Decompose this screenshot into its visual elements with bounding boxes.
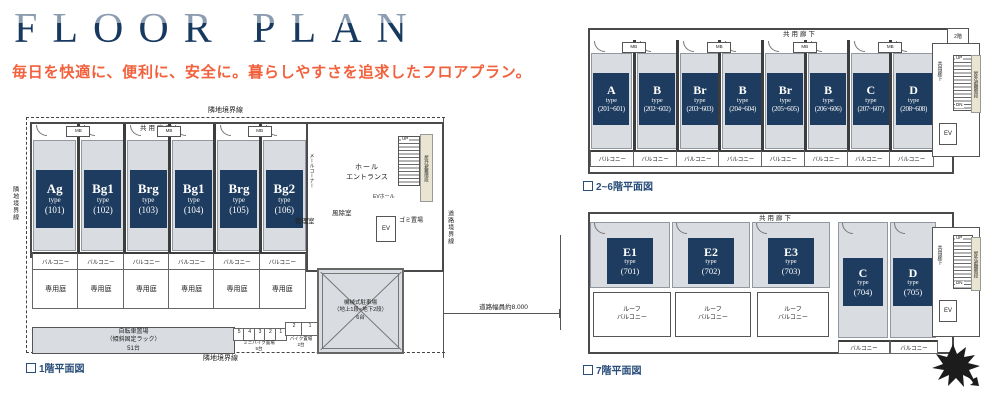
unit-cell: Bg2type(106) bbox=[259, 124, 307, 252]
unit-name: E2 bbox=[704, 246, 718, 259]
unit-tag: Brtype(203~603) bbox=[682, 73, 718, 125]
corridor-label-7f-side: 共用廊下 bbox=[936, 245, 942, 265]
unit-type-word: type bbox=[142, 196, 154, 205]
unit-name: Bg1 bbox=[92, 182, 114, 196]
private-garden-cell: 専用庭 bbox=[168, 269, 215, 309]
private-garden-cell: 専用庭 bbox=[123, 269, 170, 309]
opposite-road-line bbox=[560, 235, 561, 330]
unit-number: (205~605) bbox=[772, 105, 799, 113]
unit-number: (701) bbox=[621, 267, 639, 277]
unit-tag: E1type(701) bbox=[607, 238, 653, 284]
unit-cell: Brgtype(105) bbox=[213, 124, 261, 252]
elevator-1f: EV bbox=[376, 216, 396, 242]
unit-type-word: type bbox=[780, 97, 791, 105]
stairs-dn-26f: DN bbox=[955, 103, 964, 108]
balcony-cell: バルコニー bbox=[889, 150, 934, 167]
unit-type-word: type bbox=[278, 196, 290, 205]
roof-balcony-line2: バルコニー bbox=[698, 315, 728, 323]
balcony-cell: バルコニー bbox=[123, 252, 170, 270]
private-garden-cell: 専用庭 bbox=[259, 269, 306, 309]
dim-tick-left bbox=[443, 309, 444, 318]
bike-label2: 2台 bbox=[285, 342, 317, 347]
mb-box: MB bbox=[248, 126, 272, 137]
unit-type-word: type bbox=[233, 196, 245, 205]
unit-name: Brg bbox=[138, 182, 159, 196]
unit-type-word: type bbox=[49, 196, 61, 205]
unit-name: Bg2 bbox=[273, 182, 295, 196]
balcony-cell: バルコニー bbox=[676, 150, 721, 167]
stairs-up-7f: UP bbox=[955, 236, 963, 241]
unit-name: Ag bbox=[47, 182, 63, 196]
unit-number: (106) bbox=[275, 205, 295, 215]
boundary-label-top: 隣地境界線 bbox=[208, 107, 243, 115]
door-arc bbox=[594, 41, 605, 52]
unit-name: C bbox=[867, 84, 876, 97]
mb-box: MB bbox=[878, 42, 902, 53]
unit-cell: Agtype(101) bbox=[32, 124, 77, 252]
unit-cell: E2type(702) bbox=[672, 222, 750, 288]
unit-tag: Btype(204~604) bbox=[725, 73, 761, 125]
plan7f-units: E1type(701)E2type(702)E3type(703)Ctype(7… bbox=[583, 205, 980, 355]
roof-balcony-cell: ルーフバルコニー bbox=[675, 292, 751, 337]
balcony-cell: バルコニー bbox=[838, 340, 890, 354]
unit-number: (208~608) bbox=[900, 105, 927, 113]
unit-cell: Brtype(203~603) bbox=[676, 40, 722, 150]
corridor-label-26f: 共用廊下 bbox=[783, 31, 817, 38]
bicycle-line3: 51台 bbox=[127, 345, 140, 353]
evacuation-stairs-label-7f: 屋外避難階段 bbox=[973, 251, 979, 278]
caption-square-1f bbox=[26, 363, 36, 373]
corridor-label-26f-side: 共用廊下 bbox=[936, 61, 942, 81]
evacuation-stairs-strip-26f: 屋外避難階段 bbox=[971, 55, 981, 113]
unit-name: Br bbox=[779, 84, 792, 97]
balcony-cell: バルコニー bbox=[32, 252, 79, 270]
balcony-cell: バルコニー bbox=[77, 252, 124, 270]
unit-cell: Btype(204~604) bbox=[718, 40, 764, 150]
balcony-cell: バルコニー bbox=[213, 252, 260, 270]
unit-tag: Bg1type(104) bbox=[175, 170, 212, 228]
elevator-26f: EV bbox=[939, 123, 957, 145]
manager-room-label: 管理室 bbox=[295, 218, 315, 225]
unit-tag: Agtype(101) bbox=[36, 170, 73, 228]
unit-number: (207~607) bbox=[858, 105, 885, 113]
roof-balcony-line2: バルコニー bbox=[778, 315, 808, 323]
unit-number: (703) bbox=[782, 267, 800, 277]
unit-name: D bbox=[909, 267, 918, 280]
stairs-up-26f: UP bbox=[955, 56, 963, 61]
bicycle-parking: 自転車置場 （傾斜固定ラック） 51台 bbox=[32, 327, 235, 354]
mail-corner-label: メールコーナー bbox=[308, 153, 314, 188]
unit-tag: Bg1type(102) bbox=[84, 170, 121, 228]
roof-balcony-line1: ルーフ bbox=[704, 307, 722, 315]
unit-cell: E1type(701) bbox=[590, 222, 670, 288]
unit-tag: Btype(206~606) bbox=[810, 73, 846, 125]
caption-text-7f: 7階平面図 bbox=[596, 362, 642, 377]
unit-cell: Bg1type(102) bbox=[77, 124, 125, 252]
stairs-up-label-1f: UP bbox=[401, 137, 409, 142]
road-boundary-label: 道路境界線 bbox=[446, 210, 453, 245]
minibike-parking: 54321 ミニバイク置場 5台 bbox=[233, 328, 285, 352]
plan1f-units: Agtype(101)Bg1type(102)Brgtype(103)Bg1ty… bbox=[32, 124, 304, 252]
road-width-label: 道路幅員約8.000 bbox=[447, 304, 560, 311]
unit-name: A bbox=[607, 84, 616, 97]
unit-cell: Dtype(705) bbox=[890, 222, 936, 338]
unit-number: (201~601) bbox=[598, 105, 625, 113]
boundary-label-bottom: 隣地境界線 bbox=[203, 355, 238, 363]
balcony-cell: バルコニー bbox=[633, 150, 678, 167]
roof-balcony-cell: ルーフバルコニー bbox=[593, 292, 671, 337]
caption-square-7f bbox=[583, 365, 593, 375]
evacuation-stairs-strip-7f: 屋外避難階段 bbox=[971, 237, 981, 291]
elevator-7f: EV bbox=[939, 300, 957, 322]
roof-balcony-line1: ルーフ bbox=[623, 307, 641, 315]
unit-cell: Dtype(208~608) bbox=[889, 40, 935, 150]
boundary-line-top bbox=[26, 117, 445, 118]
unit-number: (202~602) bbox=[644, 105, 671, 113]
unit-name: Brg bbox=[229, 182, 250, 196]
unit-number: (103) bbox=[139, 205, 159, 215]
unit-name: E1 bbox=[623, 246, 637, 259]
private-garden-cell: 専用庭 bbox=[213, 269, 260, 309]
unit-number: (704) bbox=[854, 288, 872, 298]
mb-box: MB bbox=[707, 42, 731, 53]
plan-1f: 隣地境界線 隣地境界線 隣地境界線 道路境界線 共用廊下 Agtype(101)… bbox=[18, 98, 462, 390]
balcony-cell: バルコニー bbox=[718, 150, 763, 167]
unit-cell: Btype(202~602) bbox=[633, 40, 679, 150]
unit-number: (206~606) bbox=[815, 105, 842, 113]
unit-number: (104) bbox=[184, 205, 204, 215]
unit-name: E3 bbox=[784, 246, 798, 259]
door-arc bbox=[36, 125, 47, 136]
mech-line3: 6台 bbox=[356, 315, 365, 322]
plan1f-gardens: 専用庭専用庭専用庭専用庭専用庭専用庭 bbox=[32, 269, 304, 308]
unit-number: (702) bbox=[702, 267, 720, 277]
unit-tag: Atype(201~601) bbox=[593, 73, 629, 125]
roof-balcony-cell: ルーフバルコニー bbox=[757, 292, 829, 337]
ev-hall-label: EVホール bbox=[373, 195, 395, 201]
bike-number-row: 21 bbox=[285, 322, 317, 334]
unit-number: (204~604) bbox=[729, 105, 756, 113]
unit-type-word: type bbox=[694, 97, 705, 105]
caption-text-1f: 1階平面図 bbox=[39, 360, 85, 375]
plan-7f: 共用廊下 E1type(701)E2type(702)E3type(703)Ct… bbox=[583, 205, 980, 390]
unit-tag: Dtype(208~608) bbox=[896, 73, 932, 125]
unit-tag: Brtype(205~605) bbox=[767, 73, 803, 125]
unit-cell: Brtype(205~605) bbox=[761, 40, 807, 150]
unit-name: B bbox=[739, 84, 747, 97]
plan-2-6f: 共用廊下 Atype(201~601)Btype(202~602)Brtype(… bbox=[583, 15, 980, 197]
mb-box: MB bbox=[793, 42, 817, 53]
balcony-cell: バルコニー bbox=[761, 150, 806, 167]
unit-name: D bbox=[909, 84, 918, 97]
unit-tag: Btype(202~602) bbox=[639, 73, 675, 125]
stairs-dn-7f: DN bbox=[955, 281, 964, 286]
evacuation-stairs-label-1f: 屋外避難階段 bbox=[424, 155, 430, 182]
unit-cell: E3type(703) bbox=[752, 222, 830, 288]
hall-entrance-line2: エントランス bbox=[336, 174, 398, 182]
balcony-cell: バルコニー bbox=[804, 150, 849, 167]
unit-type-word: type bbox=[188, 196, 200, 205]
mech-line2: （地上1段×地下2段） bbox=[334, 307, 387, 314]
hall-entrance-line1: ホール bbox=[336, 164, 398, 172]
mechanical-parking-label: 機械式駐車場 （地上1段×地下2段） 6台 bbox=[319, 270, 402, 352]
unit-number: (705) bbox=[904, 288, 922, 298]
unit-type-word: type bbox=[652, 97, 663, 105]
unit-cell: Bg1type(104) bbox=[168, 124, 216, 252]
garbage-area-label: ゴミ置場 bbox=[399, 218, 423, 225]
roof-balcony-line1: ルーフ bbox=[784, 307, 802, 315]
caption-1f: 1階平面図 bbox=[26, 360, 85, 375]
page-subtitle: 毎日を快適に、便利に、安全に。暮らしやすさを追求したフロアプラン。 bbox=[12, 61, 531, 82]
evacuation-stairs-strip-1f: 屋外避難階段 bbox=[420, 134, 433, 202]
balcony-cell: バルコニー bbox=[590, 150, 635, 167]
floor-plan-page: FLOOR PLAN 毎日を快適に、便利に、安全に。暮らしやすさを追求したフロア… bbox=[0, 0, 1000, 400]
unit-name: B bbox=[653, 84, 661, 97]
door-arc bbox=[220, 125, 231, 136]
unit-name: Br bbox=[693, 84, 706, 97]
caption-square-26f bbox=[583, 181, 593, 191]
bicycle-line2: （傾斜固定ラック） bbox=[106, 336, 160, 344]
plan26f-balconies: バルコニーバルコニーバルコニーバルコニーバルコニーバルコニーバルコニーバルコニー bbox=[590, 150, 932, 165]
plan1f-balconies: バルコニーバルコニーバルコニーバルコニーバルコニーバルコニー bbox=[32, 252, 304, 268]
minibike-label1: ミニバイク置場 bbox=[233, 340, 285, 345]
bike-label1: バイク置場 bbox=[285, 336, 317, 341]
unit-tag: E2type(702) bbox=[688, 238, 734, 284]
unit-type-word: type bbox=[97, 196, 109, 205]
mechanical-parking: 機械式駐車場 （地上1段×地下2段） 6台 bbox=[317, 268, 404, 354]
private-garden-cell: 専用庭 bbox=[77, 269, 124, 309]
unit-tag: Ctype(704) bbox=[843, 258, 883, 306]
unit-tag: E3type(703) bbox=[768, 238, 814, 284]
unit-name: B bbox=[824, 84, 832, 97]
windbreak-room-label: 風除室 bbox=[332, 210, 352, 217]
plan26f-units: Atype(201~601)Btype(202~602)Brtype(203~6… bbox=[590, 40, 932, 150]
boundary-line-left bbox=[26, 117, 27, 353]
mb-box: MB bbox=[622, 42, 646, 53]
bicycle-line1: 自転車置場 bbox=[118, 328, 148, 336]
balcony-cell: バルコニー bbox=[847, 150, 892, 167]
unit-type-word: type bbox=[606, 97, 617, 105]
unit-tag: Brgtype(105) bbox=[220, 170, 257, 228]
unit-cell: Ctype(704) bbox=[838, 222, 888, 338]
mb-box: MB bbox=[157, 126, 181, 137]
stairs-1f bbox=[398, 136, 420, 186]
evacuation-stairs-label-26f: 屋外避難階段 bbox=[973, 71, 979, 98]
door-arc bbox=[768, 41, 779, 52]
minibike-number-row: 54321 bbox=[233, 328, 285, 339]
boundary-label-left: 隣地境界線 bbox=[11, 186, 18, 221]
road-width-dim-line bbox=[443, 313, 560, 314]
unit-name: C bbox=[859, 267, 868, 280]
unit-type-word: type bbox=[865, 97, 876, 105]
caption-text-26f: 2~6階平面図 bbox=[596, 178, 653, 193]
unit-cell: Ctype(207~607) bbox=[847, 40, 893, 150]
bike-parking: 21 バイク置場 2台 bbox=[285, 322, 317, 352]
unit-type-word: type bbox=[737, 97, 748, 105]
unit-cell: Btype(206~606) bbox=[804, 40, 850, 150]
unit-number: (101) bbox=[45, 205, 65, 215]
minibike-label2: 5台 bbox=[233, 346, 285, 351]
unit-number: (102) bbox=[93, 205, 113, 215]
unit-type-word: type bbox=[908, 97, 919, 105]
unit-number: (203~603) bbox=[687, 105, 714, 113]
page-title: FLOOR PLAN bbox=[14, 8, 422, 50]
private-garden-cell: 専用庭 bbox=[32, 269, 79, 309]
unit-tag: Ctype(207~607) bbox=[853, 73, 889, 125]
unit-number: (105) bbox=[229, 205, 249, 215]
unit-tag: Brgtype(103) bbox=[130, 170, 167, 228]
caption-7f: 7階平面図 bbox=[583, 362, 642, 377]
unit-cell: Brgtype(103) bbox=[123, 124, 171, 252]
door-arc bbox=[130, 125, 141, 136]
door-arc bbox=[854, 41, 865, 52]
north-arrow-starburst bbox=[928, 342, 986, 392]
unit-tag: Dtype(705) bbox=[893, 258, 933, 306]
unit-type-word: type bbox=[823, 97, 834, 105]
unit-name: Bg1 bbox=[183, 182, 205, 196]
door-arc bbox=[683, 41, 694, 52]
roof-balcony-line2: バルコニー bbox=[617, 315, 647, 323]
balcony-cell: バルコニー bbox=[259, 252, 306, 270]
mb-box: MB bbox=[66, 126, 90, 137]
caption-26f: 2~6階平面図 bbox=[583, 178, 653, 193]
unit-cell: Atype(201~601) bbox=[590, 40, 633, 150]
balcony-cell: バルコニー bbox=[168, 252, 215, 270]
